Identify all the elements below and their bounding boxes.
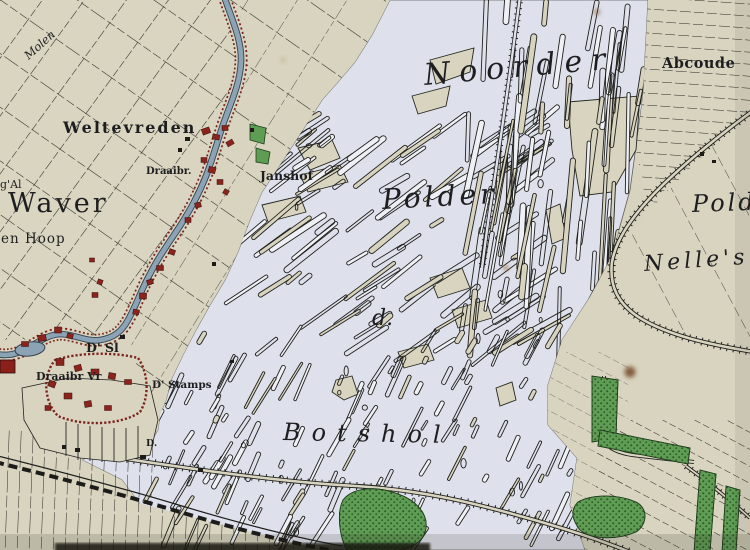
red-building [84, 400, 92, 407]
black-building [700, 152, 704, 156]
red-building [64, 393, 72, 399]
red-building [185, 218, 191, 223]
black-building [212, 262, 216, 266]
black-building [178, 148, 182, 152]
map-artwork [0, 0, 750, 550]
red-building [108, 372, 116, 379]
large-red-building [0, 360, 15, 373]
black-building [140, 455, 146, 459]
red-building [38, 334, 47, 341]
black-building [75, 448, 80, 452]
black-building [120, 335, 125, 339]
map-canvas: Noorder Polder d. Botshol Polder Nelle's… [0, 0, 750, 550]
black-building [712, 160, 716, 163]
black-building [230, 360, 234, 363]
red-building [91, 369, 99, 375]
red-building [55, 327, 62, 333]
woods-blob-south [573, 496, 645, 538]
red-building [140, 293, 147, 299]
red-building [222, 126, 228, 131]
red-building [92, 293, 98, 298]
black-building [185, 137, 190, 141]
red-building [217, 180, 223, 185]
red-building [201, 158, 207, 163]
red-building [56, 359, 64, 366]
red-building [45, 406, 51, 411]
red-building [90, 258, 95, 262]
red-building [212, 134, 220, 140]
black-building [250, 128, 254, 132]
red-building [133, 309, 140, 315]
black-building [62, 445, 66, 449]
red-building [157, 266, 164, 271]
red-building [105, 406, 112, 411]
red-building [125, 380, 132, 385]
black-building [198, 468, 203, 472]
red-building [22, 342, 29, 347]
